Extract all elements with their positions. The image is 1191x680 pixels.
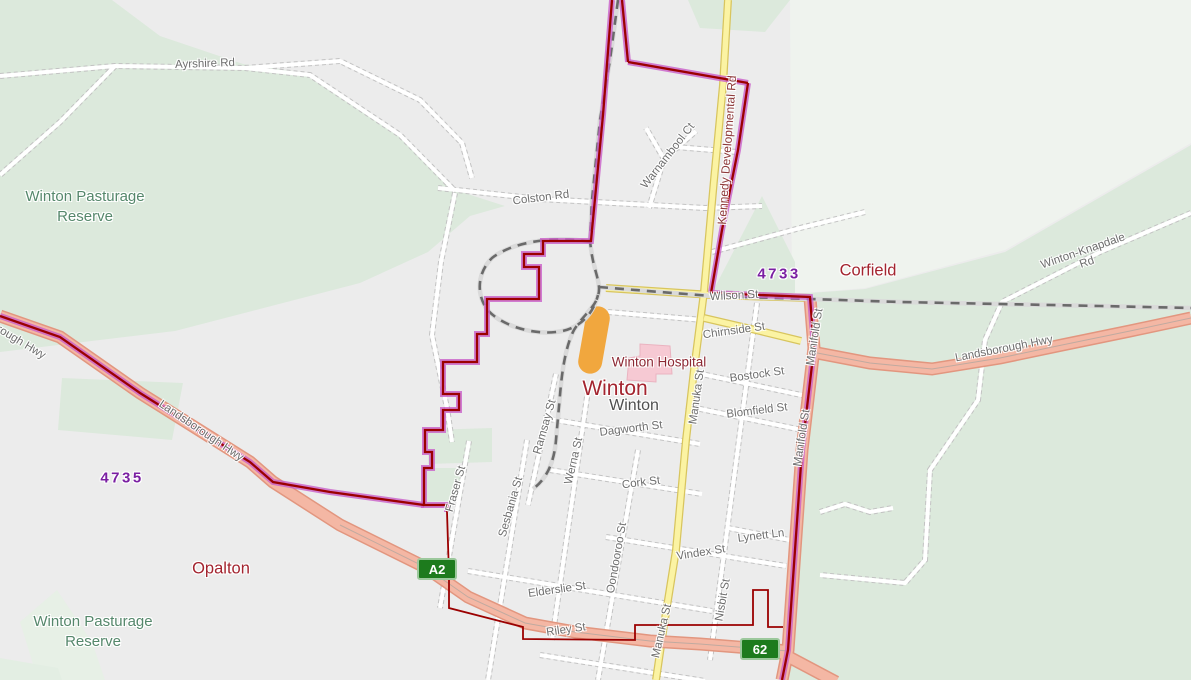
shield-route-62: 62: [740, 638, 780, 660]
map-graphics: [0, 0, 1191, 680]
shield-route-a2: A2: [417, 558, 457, 580]
map-canvas[interactable]: Ayrshire RdColston RdWarnambool CtKenned…: [0, 0, 1191, 680]
